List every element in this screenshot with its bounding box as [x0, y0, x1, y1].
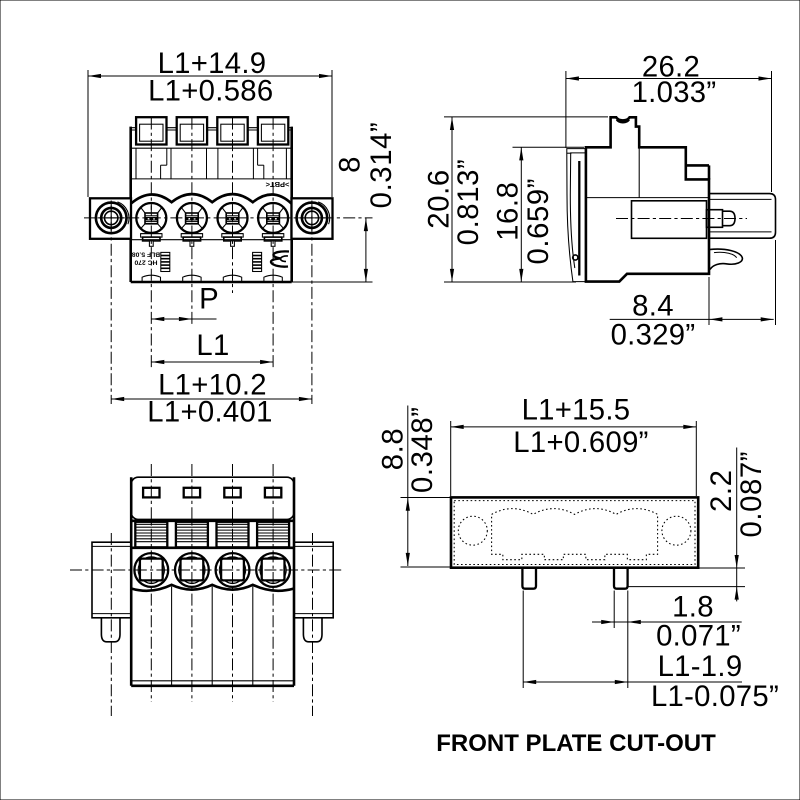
svg-text:0.314”: 0.314” [365, 122, 398, 209]
svg-text:FRONT PLATE CUT-OUT: FRONT PLATE CUT-OUT [436, 730, 716, 757]
svg-text:0.659”: 0.659” [522, 178, 555, 265]
svg-text:L1-1.9: L1-1.9 [658, 650, 743, 683]
svg-text:L1: L1 [196, 329, 229, 362]
svg-text:8: 8 [334, 156, 367, 173]
svg-text:L1+0.586: L1+0.586 [148, 75, 273, 108]
svg-text:0.071”: 0.071” [656, 620, 741, 653]
svg-text:1.033”: 1.033” [632, 76, 717, 109]
svg-text:0.087”: 0.087” [735, 451, 768, 538]
svg-text:0.813”: 0.813” [452, 159, 485, 246]
svg-text:L1-0.075”: L1-0.075” [651, 680, 779, 713]
svg-text:L1+0.609”: L1+0.609” [513, 426, 648, 459]
svg-text:16.8: 16.8 [492, 181, 525, 240]
svg-text:L1+15.5: L1+15.5 [522, 394, 631, 427]
svg-text:L1+0.401: L1+0.401 [147, 396, 272, 429]
svg-text:0.329”: 0.329” [611, 319, 696, 352]
svg-text:20.6: 20.6 [423, 169, 456, 228]
svg-text:HC 270: HC 270 [134, 259, 157, 266]
svg-text:P: P [199, 283, 219, 316]
svg-text:>PBT<: >PBT< [265, 180, 289, 189]
svg-text:8.8: 8.8 [377, 428, 410, 471]
svg-text:0.348”: 0.348” [406, 406, 439, 493]
svg-text:BLF 5.08: BLF 5.08 [132, 251, 161, 258]
svg-text:2.2: 2.2 [705, 469, 738, 512]
